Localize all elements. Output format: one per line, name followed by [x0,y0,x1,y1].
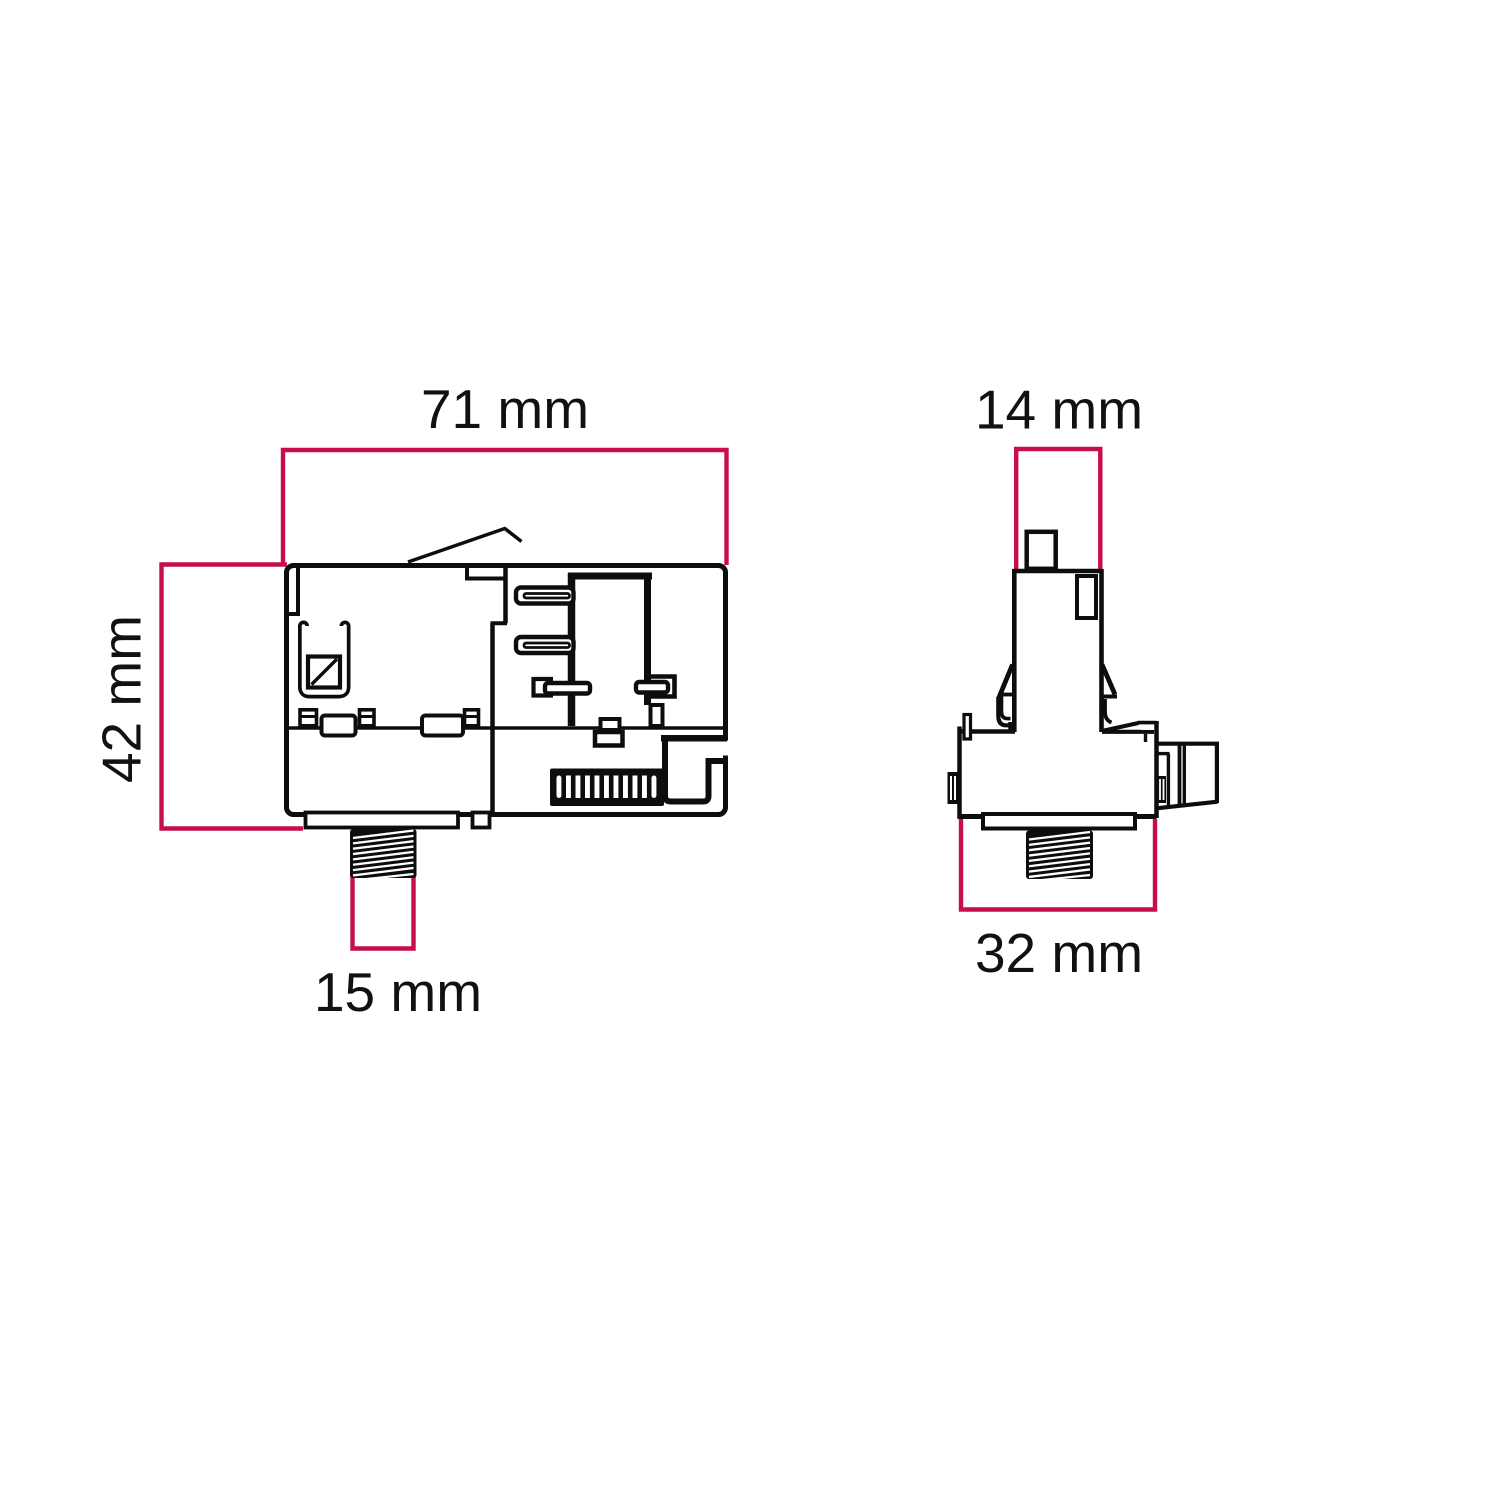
svg-text:14 mm: 14 mm [975,379,1143,441]
svg-text:15 mm: 15 mm [314,961,482,1023]
svg-text:71 mm: 71 mm [421,378,589,440]
svg-text:42 mm: 42 mm [91,615,153,783]
svg-text:32 mm: 32 mm [975,922,1143,984]
